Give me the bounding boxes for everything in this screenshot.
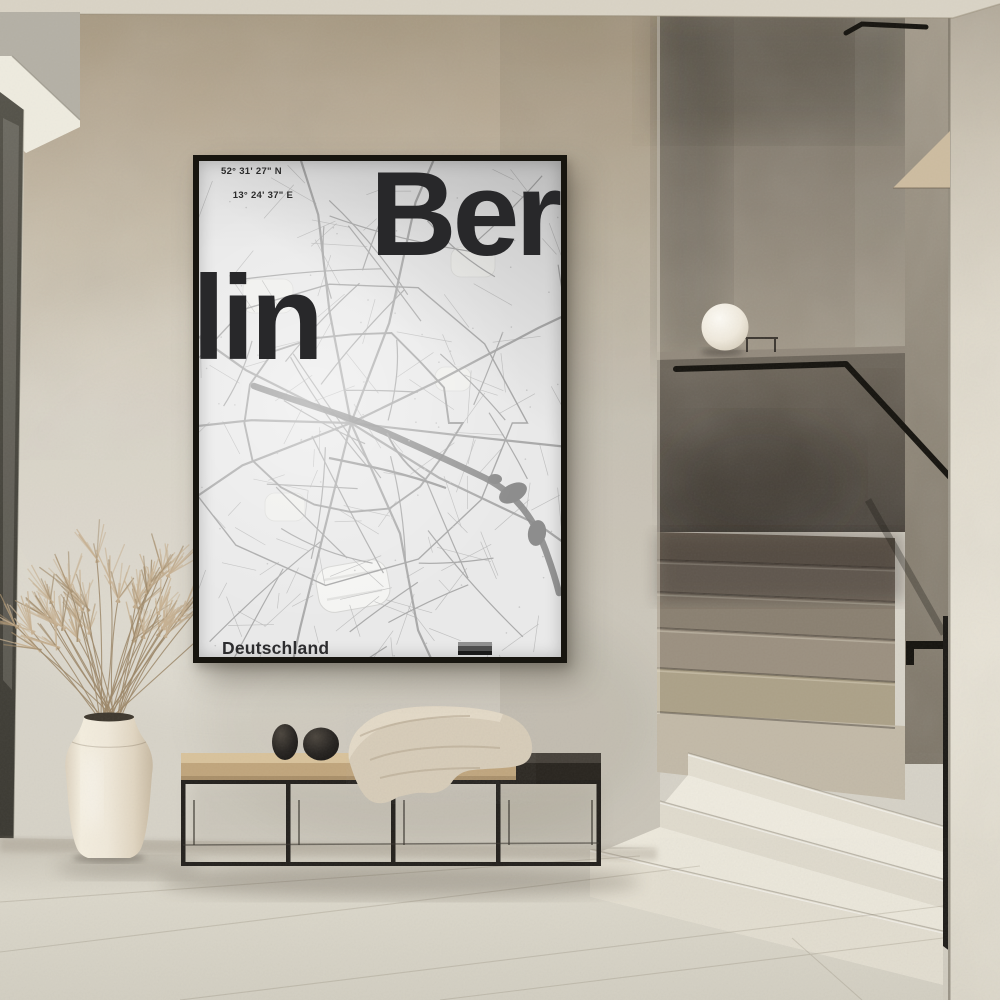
- flag-stripe-bottom: [458, 651, 492, 655]
- coordinates-label: 52° 31' 27" N 13° 24' 37" E: [221, 166, 293, 202]
- coordinates-line2: 13° 24' 37" E: [233, 190, 293, 201]
- interior-scene: 52° 31' 27" N 13° 24' 37" E Ber lin Deut…: [0, 0, 1000, 1000]
- coordinates-line1: 52° 31' 27" N: [221, 166, 282, 177]
- poster-title-bottom: lin: [193, 258, 320, 378]
- poster-title-top: Ber: [370, 155, 558, 274]
- german-flag: [458, 642, 492, 655]
- berlin-map-poster: 52° 31' 27" N 13° 24' 37" E Ber lin Deut…: [193, 155, 567, 663]
- country-label: Deutschland: [222, 638, 329, 659]
